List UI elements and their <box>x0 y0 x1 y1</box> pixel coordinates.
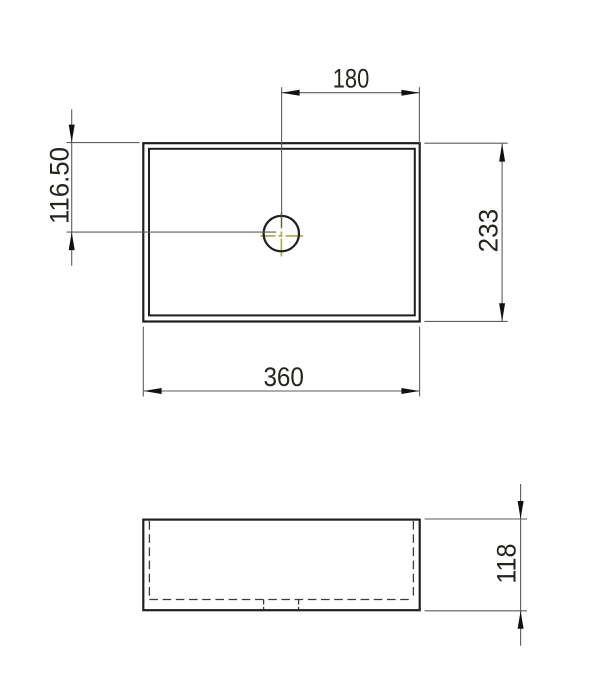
svg-text:233: 233 <box>473 209 503 253</box>
svg-text:180: 180 <box>333 64 370 94</box>
svg-text:360: 360 <box>263 362 304 392</box>
svg-text:116.50: 116.50 <box>44 147 74 224</box>
svg-text:118: 118 <box>491 544 521 584</box>
